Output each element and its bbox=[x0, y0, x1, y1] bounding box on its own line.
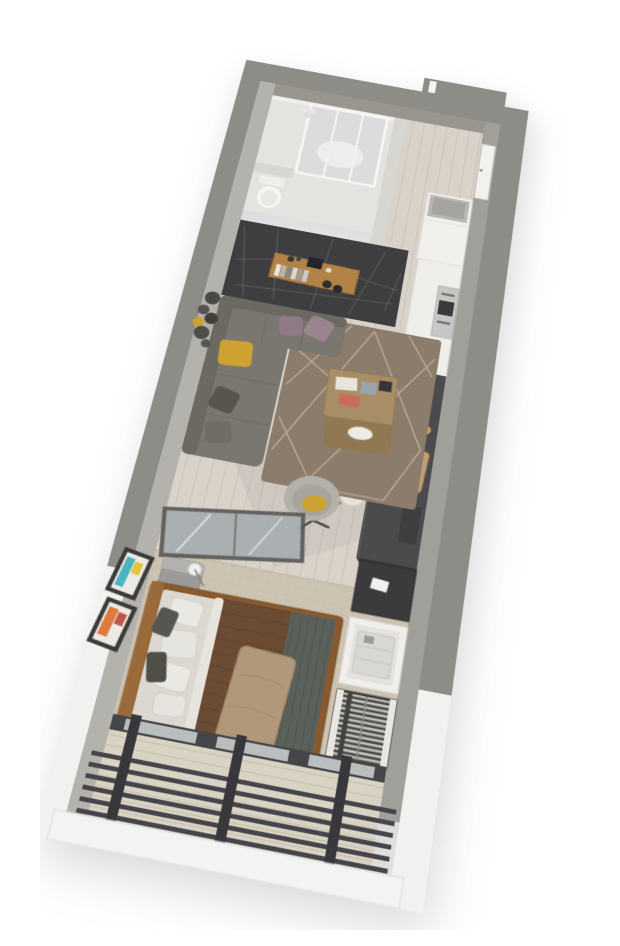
throw-pillow-gray bbox=[205, 421, 232, 442]
throw-pillow-mustard bbox=[217, 339, 253, 367]
magazine bbox=[360, 381, 377, 395]
mirror-wardrobe bbox=[161, 508, 303, 561]
accent-pillow-dark bbox=[146, 652, 167, 682]
apartment-plan bbox=[40, 45, 530, 914]
table-box bbox=[378, 380, 392, 392]
table-top bbox=[323, 368, 398, 425]
coffee-table bbox=[319, 368, 398, 455]
oven-window bbox=[437, 300, 454, 317]
laundry-unit bbox=[339, 617, 408, 694]
magazine bbox=[335, 377, 357, 391]
throw-pillow-mauve bbox=[279, 316, 302, 336]
hanger-rack bbox=[326, 689, 397, 768]
floorplan-render bbox=[40, 16, 620, 930]
